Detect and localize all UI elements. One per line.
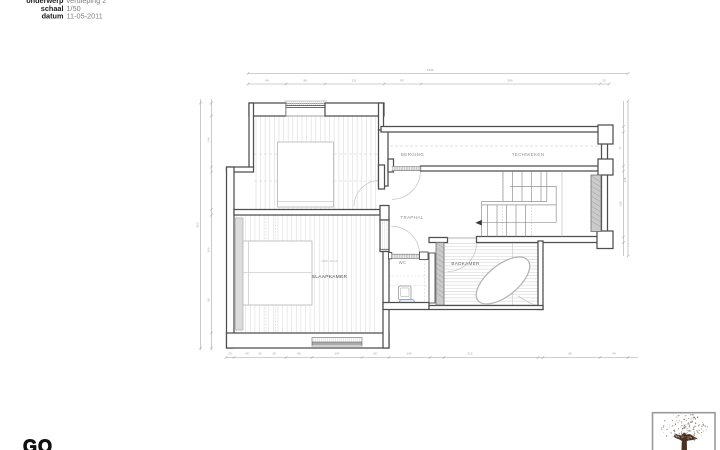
svg-text:11-05-2011: 11-05-2011 — [67, 12, 103, 21]
svg-text:40: 40 — [245, 352, 249, 356]
svg-text:BERGING: BERGING — [401, 152, 424, 157]
svg-text:TECHNIEKEN: TECHNIEKEN — [512, 152, 545, 157]
svg-text:datum: datum — [42, 12, 64, 21]
svg-text:144: 144 — [206, 137, 210, 142]
svg-text:30: 30 — [258, 352, 262, 356]
svg-text:131: 131 — [351, 79, 356, 83]
svg-text:80: 80 — [206, 298, 210, 302]
svg-text:BADKAMER: BADKAMER — [451, 261, 480, 266]
svg-text:167: 167 — [334, 352, 339, 356]
svg-text:553: 553 — [195, 222, 199, 227]
svg-text:84: 84 — [265, 79, 269, 83]
svg-text:88: 88 — [303, 79, 307, 83]
svg-text:266: 266 — [206, 247, 210, 252]
svg-text:GO: GO — [23, 437, 53, 450]
svg-text:345: 345 — [623, 177, 627, 182]
svg-text:OPP: 16 m2: OPP: 16 m2 — [321, 259, 338, 263]
svg-text:94: 94 — [612, 352, 616, 356]
svg-text:25: 25 — [228, 352, 232, 356]
svg-text:95: 95 — [568, 352, 572, 356]
svg-text:83: 83 — [400, 79, 404, 83]
svg-text:148: 148 — [618, 201, 622, 206]
svg-text:140: 140 — [406, 352, 411, 356]
svg-text:77: 77 — [618, 146, 622, 150]
svg-text:90: 90 — [373, 352, 377, 356]
svg-text:315: 315 — [467, 352, 472, 356]
svg-text:399: 399 — [507, 79, 512, 83]
svg-text:86: 86 — [297, 352, 301, 356]
svg-text:20: 20 — [602, 79, 606, 83]
svg-text:1299: 1299 — [427, 68, 434, 72]
svg-text:TRAPHAL: TRAPHAL — [400, 215, 423, 220]
svg-text:WC: WC — [399, 260, 407, 265]
svg-text:SLAAPKAMER: SLAAPKAMER — [312, 274, 348, 280]
svg-text:28: 28 — [272, 352, 276, 356]
